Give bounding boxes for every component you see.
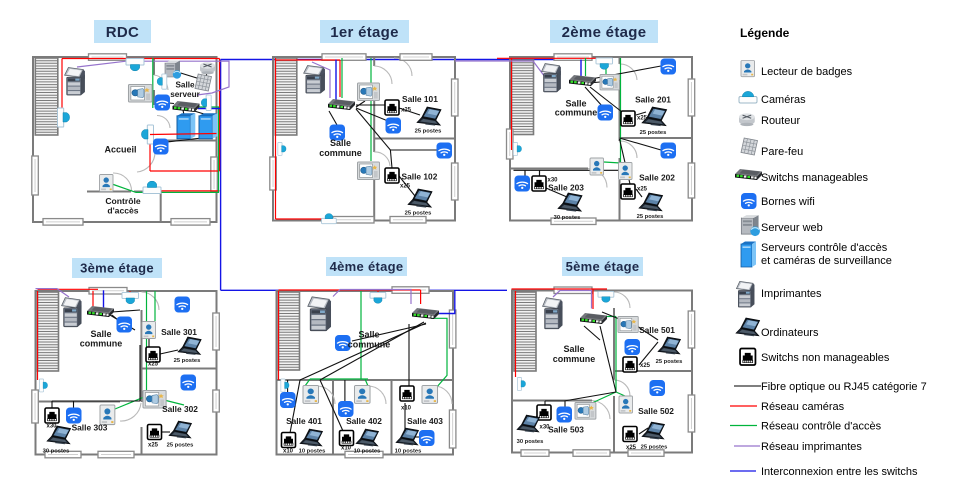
svg-text:Salle 403: Salle 403 [407,416,443,426]
svg-text:2ème étage: 2ème étage [562,24,647,41]
svg-text:d'accès: d'accès [107,206,138,216]
svg-text:Salle 102: Salle 102 [402,172,438,182]
svg-text:25 postes: 25 postes [656,359,683,365]
svg-text:x10: x10 [341,446,352,452]
svg-text:Réseau imprimantes: Réseau imprimantes [761,441,862,453]
svg-text:Légende: Légende [740,26,790,40]
svg-text:Lecteur de badges: Lecteur de badges [761,66,853,78]
svg-text:Salle 502: Salle 502 [638,406,674,416]
svg-text:25 postes: 25 postes [167,443,194,449]
svg-text:Serveurs contrôle d'accès: Serveurs contrôle d'accès [761,242,888,254]
svg-text:x25: x25 [640,363,651,369]
svg-text:x25: x25 [626,445,637,451]
svg-text:Serveur web: Serveur web [761,222,823,234]
svg-text:x25: x25 [401,108,412,114]
svg-text:Salle: Salle [175,81,195,90]
svg-text:4ème étage: 4ème étage [330,259,404,274]
svg-text:Imprimantes: Imprimantes [761,288,822,300]
svg-text:Contrôle: Contrôle [105,196,141,206]
svg-text:commune: commune [80,339,123,349]
svg-text:Salle 401: Salle 401 [286,416,322,426]
svg-text:1er étage: 1er étage [330,24,399,41]
svg-text:Salle: Salle [330,138,351,148]
svg-text:Salle 303: Salle 303 [72,423,108,433]
svg-text:x25: x25 [148,362,159,368]
svg-text:x25: x25 [637,187,648,193]
svg-text:Salle: Salle [358,330,379,340]
svg-text:x30: x30 [47,424,58,430]
svg-text:Réseau contrôle d'accès: Réseau contrôle d'accès [761,421,882,433]
svg-text:serveur: serveur [170,90,200,99]
svg-text:commune: commune [348,340,391,350]
svg-text:x25: x25 [148,443,159,449]
svg-text:30 postes: 30 postes [43,449,70,455]
svg-text:RDC: RDC [106,24,139,41]
svg-text:Réseau caméras: Réseau caméras [761,401,845,413]
svg-text:Salle 302: Salle 302 [162,404,198,414]
svg-text:Salle 402: Salle 402 [346,416,382,426]
svg-text:Salle 101: Salle 101 [402,94,438,104]
svg-text:Pare-feu: Pare-feu [761,146,803,158]
svg-text:25 postes: 25 postes [405,211,432,217]
svg-text:Salle 301: Salle 301 [161,327,197,337]
svg-text:Accueil: Accueil [104,145,136,155]
svg-text:10 postes: 10 postes [395,449,422,455]
svg-text:Switchs manageables: Switchs manageables [761,172,869,184]
svg-text:5ème étage: 5ème étage [566,259,640,274]
svg-text:30 postes: 30 postes [554,215,581,221]
svg-text:et caméras de surveillance: et caméras de surveillance [761,255,892,267]
svg-text:Salle 503: Salle 503 [548,425,584,435]
svg-text:x10: x10 [283,449,294,455]
svg-text:commune: commune [553,354,596,364]
svg-text:10 postes: 10 postes [354,449,381,455]
svg-text:Salle: Salle [563,344,584,354]
svg-text:25 postes: 25 postes [641,445,668,451]
svg-text:Salle 501: Salle 501 [639,325,675,335]
svg-text:Switchs non manageables: Switchs non manageables [761,352,890,364]
svg-text:Ordinateurs: Ordinateurs [761,327,819,339]
svg-text:Fibre optique ou RJ45 catégori: Fibre optique ou RJ45 catégorie 7 [761,381,927,393]
svg-text:10 postes: 10 postes [299,449,326,455]
svg-text:Bornes wifi: Bornes wifi [761,196,815,208]
svg-text:Caméras: Caméras [761,94,806,106]
svg-text:x30: x30 [540,425,551,431]
svg-text:3ème étage: 3ème étage [80,261,154,276]
svg-text:25 postes: 25 postes [415,129,442,135]
svg-text:commune: commune [555,108,598,118]
svg-text:commune: commune [319,148,362,158]
svg-text:Salle 203: Salle 203 [548,183,584,193]
svg-text:30 postes: 30 postes [517,439,544,445]
svg-text:25 postes: 25 postes [637,214,664,220]
svg-text:x30: x30 [548,178,559,184]
svg-text:Routeur: Routeur [761,115,800,127]
svg-text:Salle 201: Salle 201 [635,95,671,105]
svg-text:Interconnexion entre les switc: Interconnexion entre les switchs [761,466,918,478]
svg-text:Salle 202: Salle 202 [639,173,675,183]
svg-text:x25: x25 [400,184,411,190]
svg-text:25 postes: 25 postes [174,358,201,364]
svg-text:x10: x10 [401,406,412,412]
svg-text:x25: x25 [637,116,648,122]
svg-text:25 postes: 25 postes [640,130,667,136]
svg-text:Salle: Salle [90,329,111,339]
